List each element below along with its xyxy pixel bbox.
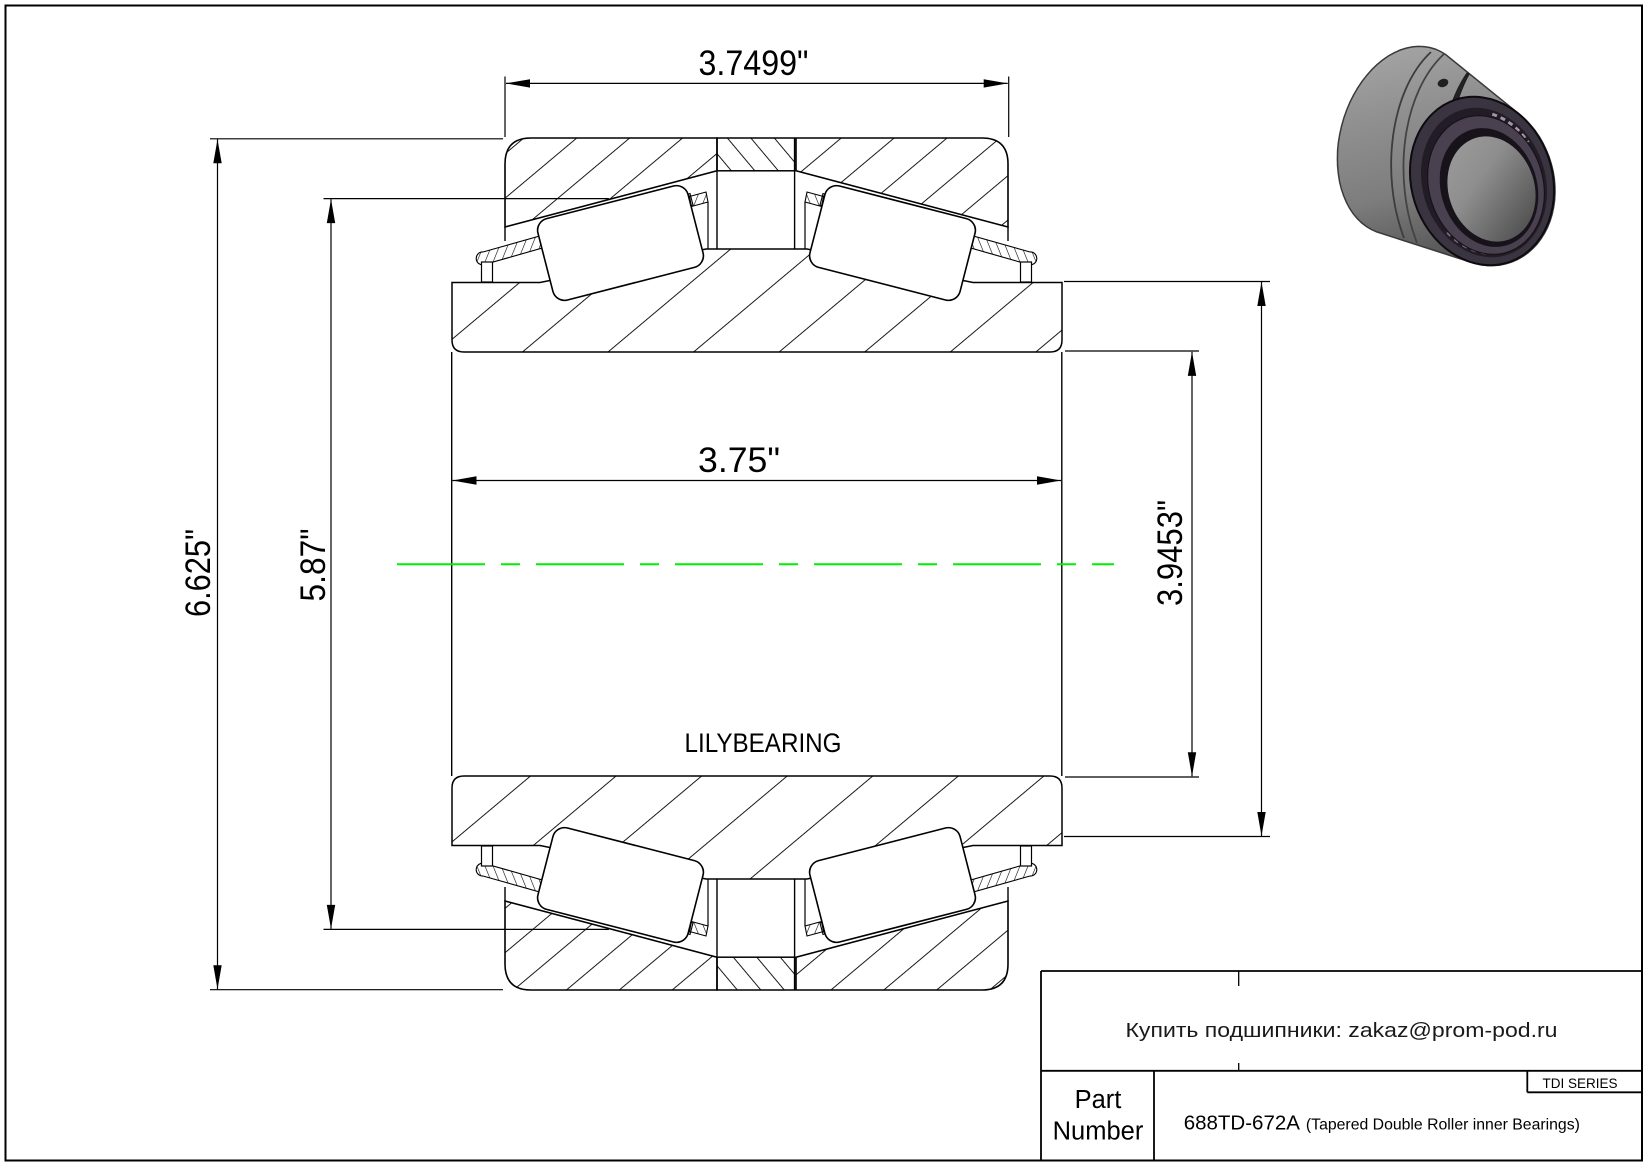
svg-text:Купить подшипники: zakaz@prom-: Купить подшипники: zakaz@prom-pod.ru [1126, 1019, 1558, 1042]
svg-text:6.625": 6.625" [179, 529, 218, 617]
svg-text:TDI SERIES: TDI SERIES [1542, 1076, 1617, 1091]
svg-text:LILYBEARING: LILYBEARING [685, 728, 842, 758]
svg-text:3.75": 3.75" [698, 441, 780, 480]
svg-text:3.9453": 3.9453" [1151, 500, 1190, 606]
svg-text:5.87": 5.87" [294, 529, 333, 602]
svg-text:3.7499": 3.7499" [699, 44, 809, 83]
svg-text:Part: Part [1075, 1086, 1122, 1114]
svg-text:Number: Number [1053, 1118, 1144, 1146]
